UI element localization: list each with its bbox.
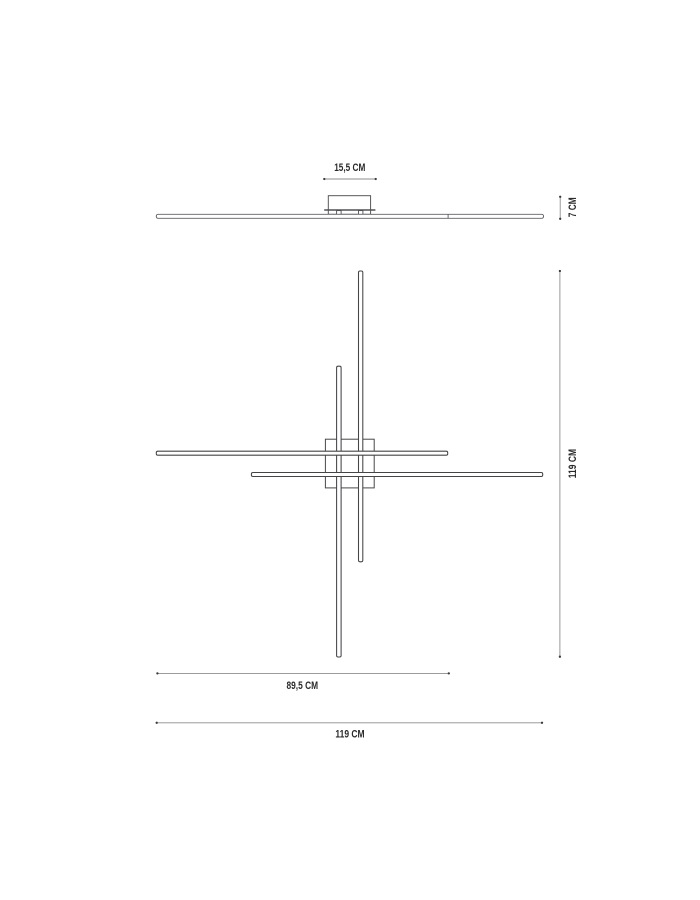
svg-text:119 CM: 119 CM [567,449,579,478]
svg-text:89,5 CM: 89,5 CM [287,680,319,692]
svg-text:7 CM: 7 CM [567,197,579,217]
svg-text:119 CM: 119 CM [335,729,364,741]
svg-text:15,5 CM: 15,5 CM [334,162,365,174]
